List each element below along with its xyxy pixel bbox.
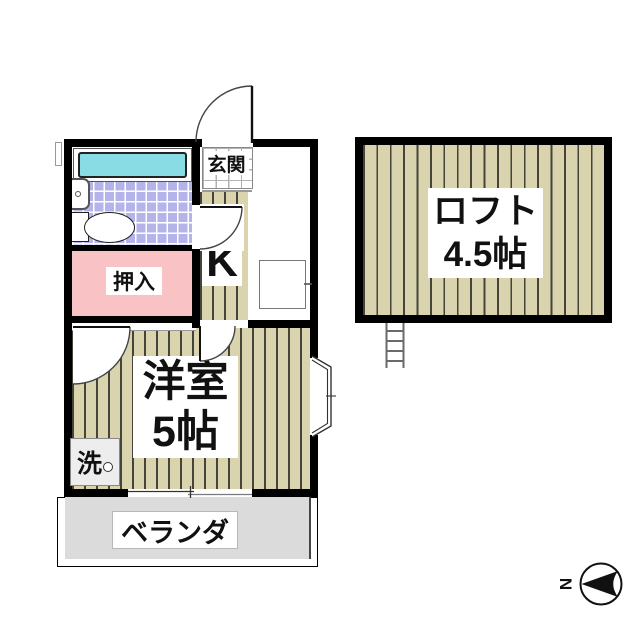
closet-label: 押入 bbox=[113, 266, 155, 296]
bathtub bbox=[78, 152, 187, 178]
wall-bottom-left bbox=[64, 489, 128, 497]
kitchen-door-opening bbox=[198, 320, 248, 328]
western-room-label-box: 洋室 5帖 bbox=[133, 356, 238, 458]
loft-label-box: ロフト 4.5帖 bbox=[428, 188, 543, 278]
laundry-faucet-icon bbox=[103, 462, 113, 472]
wall-top-right bbox=[253, 139, 318, 147]
wall-inner-vertical-upper bbox=[192, 147, 200, 205]
kitchen-label-box: K bbox=[202, 238, 242, 286]
wall-corridor-room bbox=[248, 320, 312, 328]
bay-window-icon bbox=[312, 356, 336, 437]
refrigerator-space bbox=[259, 260, 306, 309]
closet-label-box: 押入 bbox=[106, 267, 162, 295]
loft-ladder-icon bbox=[387, 323, 404, 368]
wall-bottom-right bbox=[252, 489, 318, 497]
kitchen-label: K bbox=[206, 237, 238, 287]
sink-faucet-icon bbox=[75, 191, 81, 197]
left-wall-vent bbox=[55, 142, 62, 166]
wall-closet-room bbox=[64, 316, 192, 323]
western-room-size: 5帖 bbox=[152, 407, 219, 457]
compass-north-label: N bbox=[557, 578, 576, 590]
closet-door-track bbox=[72, 323, 196, 331]
floor-plan: 玄関 K 押入 洋室 5帖 洗 ベランダ ロフト 4.5帖 bbox=[0, 0, 640, 640]
entrance-door-icon bbox=[196, 86, 252, 143]
entrance-label-box: 玄関 bbox=[204, 151, 249, 175]
wall-top-left bbox=[64, 139, 202, 147]
loft-name: ロフト bbox=[433, 190, 538, 233]
loft-size: 4.5帖 bbox=[444, 233, 528, 276]
western-room-name: 洋室 bbox=[143, 357, 229, 407]
entrance-label: 玄関 bbox=[207, 150, 245, 177]
wall-bath-closet bbox=[72, 245, 192, 251]
wall-inner-vertical-lower bbox=[192, 249, 200, 328]
laundry-label: 洗 bbox=[77, 444, 102, 480]
compass-icon: N bbox=[557, 564, 622, 605]
toilet-bowl bbox=[84, 212, 135, 243]
wall-right-lower bbox=[310, 435, 318, 497]
laundry-box: 洗 bbox=[70, 438, 120, 486]
veranda-label-box: ベランダ bbox=[112, 511, 238, 549]
veranda-label: ベランダ bbox=[121, 511, 229, 550]
